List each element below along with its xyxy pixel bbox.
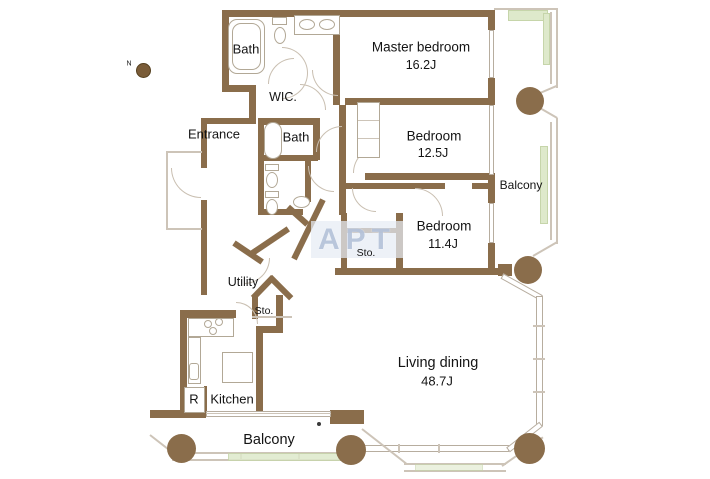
door-arc	[171, 168, 201, 198]
wall	[256, 326, 263, 415]
room-label-storage1: Sto.	[357, 247, 376, 259]
room-label-entrance: Entrance	[188, 127, 240, 142]
compass-icon	[136, 63, 151, 78]
closet-shelf-line	[358, 120, 379, 121]
room-size-bedroom2: 12.5J	[418, 146, 449, 160]
closet	[357, 102, 380, 158]
sink-icon	[319, 19, 335, 30]
pillar	[514, 433, 545, 464]
kitchen-sink	[189, 363, 199, 380]
door-arc	[415, 188, 443, 216]
wall	[249, 85, 256, 118]
room-size-bedroom3: 11.4J	[428, 237, 458, 251]
label-balcony-right: Balcony	[500, 178, 543, 192]
room-label-kitchen: Kitchen	[210, 392, 253, 407]
toilet-icon	[266, 199, 278, 215]
wall	[488, 10, 495, 30]
wall	[488, 175, 495, 203]
sliding-door	[206, 411, 331, 417]
window	[489, 105, 494, 175]
room-size-living-dining: 48.7J	[421, 374, 453, 389]
closet-shelf-line	[358, 138, 379, 139]
pillar	[336, 435, 366, 465]
door-arc	[352, 188, 376, 212]
floor-plan: N APT Bath Master bedroom 16.2J WIC. Ent…	[0, 0, 710, 479]
pillar	[514, 256, 542, 284]
room-label-wic: WIC.	[269, 90, 297, 104]
planter	[543, 13, 550, 65]
wall	[207, 118, 256, 124]
porch-line	[166, 151, 202, 153]
window-tick	[533, 391, 545, 393]
room-label-living-dining: Living dining	[398, 355, 479, 371]
toilet-icon	[266, 172, 278, 188]
porch-line	[166, 228, 202, 230]
room-label-bath2: Bath	[283, 130, 310, 145]
sliding-door-line	[206, 413, 331, 414]
railing	[550, 12, 552, 84]
wall	[335, 268, 507, 275]
room-label-bedroom2: Bedroom	[407, 129, 462, 144]
room-label-utility: Utility	[228, 275, 259, 289]
room-label-storage2: Sto.	[255, 305, 274, 317]
wall	[222, 10, 494, 17]
railing	[550, 122, 552, 240]
wall	[330, 410, 364, 424]
window-tick	[533, 358, 545, 360]
wall	[201, 118, 207, 168]
wall	[488, 243, 495, 270]
pillar	[516, 87, 544, 115]
toilet-icon	[274, 27, 286, 44]
window-tick	[533, 325, 545, 327]
stove-burner	[209, 327, 217, 335]
planter	[508, 10, 548, 21]
toilet-tank	[272, 17, 287, 25]
room-label-bath1: Bath	[233, 42, 260, 57]
window	[489, 30, 494, 78]
stove-burner	[215, 318, 223, 326]
wall	[339, 105, 346, 215]
door-arc	[308, 166, 334, 192]
room-label-refrigerator: R	[189, 392, 198, 407]
window-tick	[438, 444, 440, 453]
toilet-tank	[265, 191, 279, 198]
wall	[365, 173, 495, 180]
railing	[556, 118, 558, 244]
railing	[556, 10, 558, 88]
planter	[415, 464, 483, 471]
railing	[533, 241, 558, 257]
pillar	[167, 434, 196, 463]
room-size-master-bedroom: 16.2J	[406, 58, 437, 72]
wall-diagonal	[249, 226, 290, 256]
wall	[201, 200, 207, 295]
bathtub-icon	[264, 122, 282, 159]
wall	[258, 209, 303, 215]
wall	[488, 78, 495, 105]
label-balcony-bottom: Balcony	[243, 432, 295, 448]
planter	[228, 453, 346, 461]
room-label-bedroom3: Bedroom	[417, 219, 472, 234]
wall	[180, 310, 236, 318]
sink-icon	[299, 19, 315, 30]
porch-line	[166, 152, 168, 230]
room-label-master-bedroom: Master bedroom	[372, 40, 470, 55]
window-tick	[398, 444, 400, 453]
window	[489, 203, 494, 243]
bay-window	[536, 296, 543, 426]
door-arc	[268, 58, 294, 84]
toilet-tank	[265, 164, 279, 171]
door-handle-dot	[317, 422, 321, 426]
compass-label: N	[126, 61, 131, 68]
kitchen-island	[222, 352, 253, 383]
sink-icon	[293, 196, 310, 208]
